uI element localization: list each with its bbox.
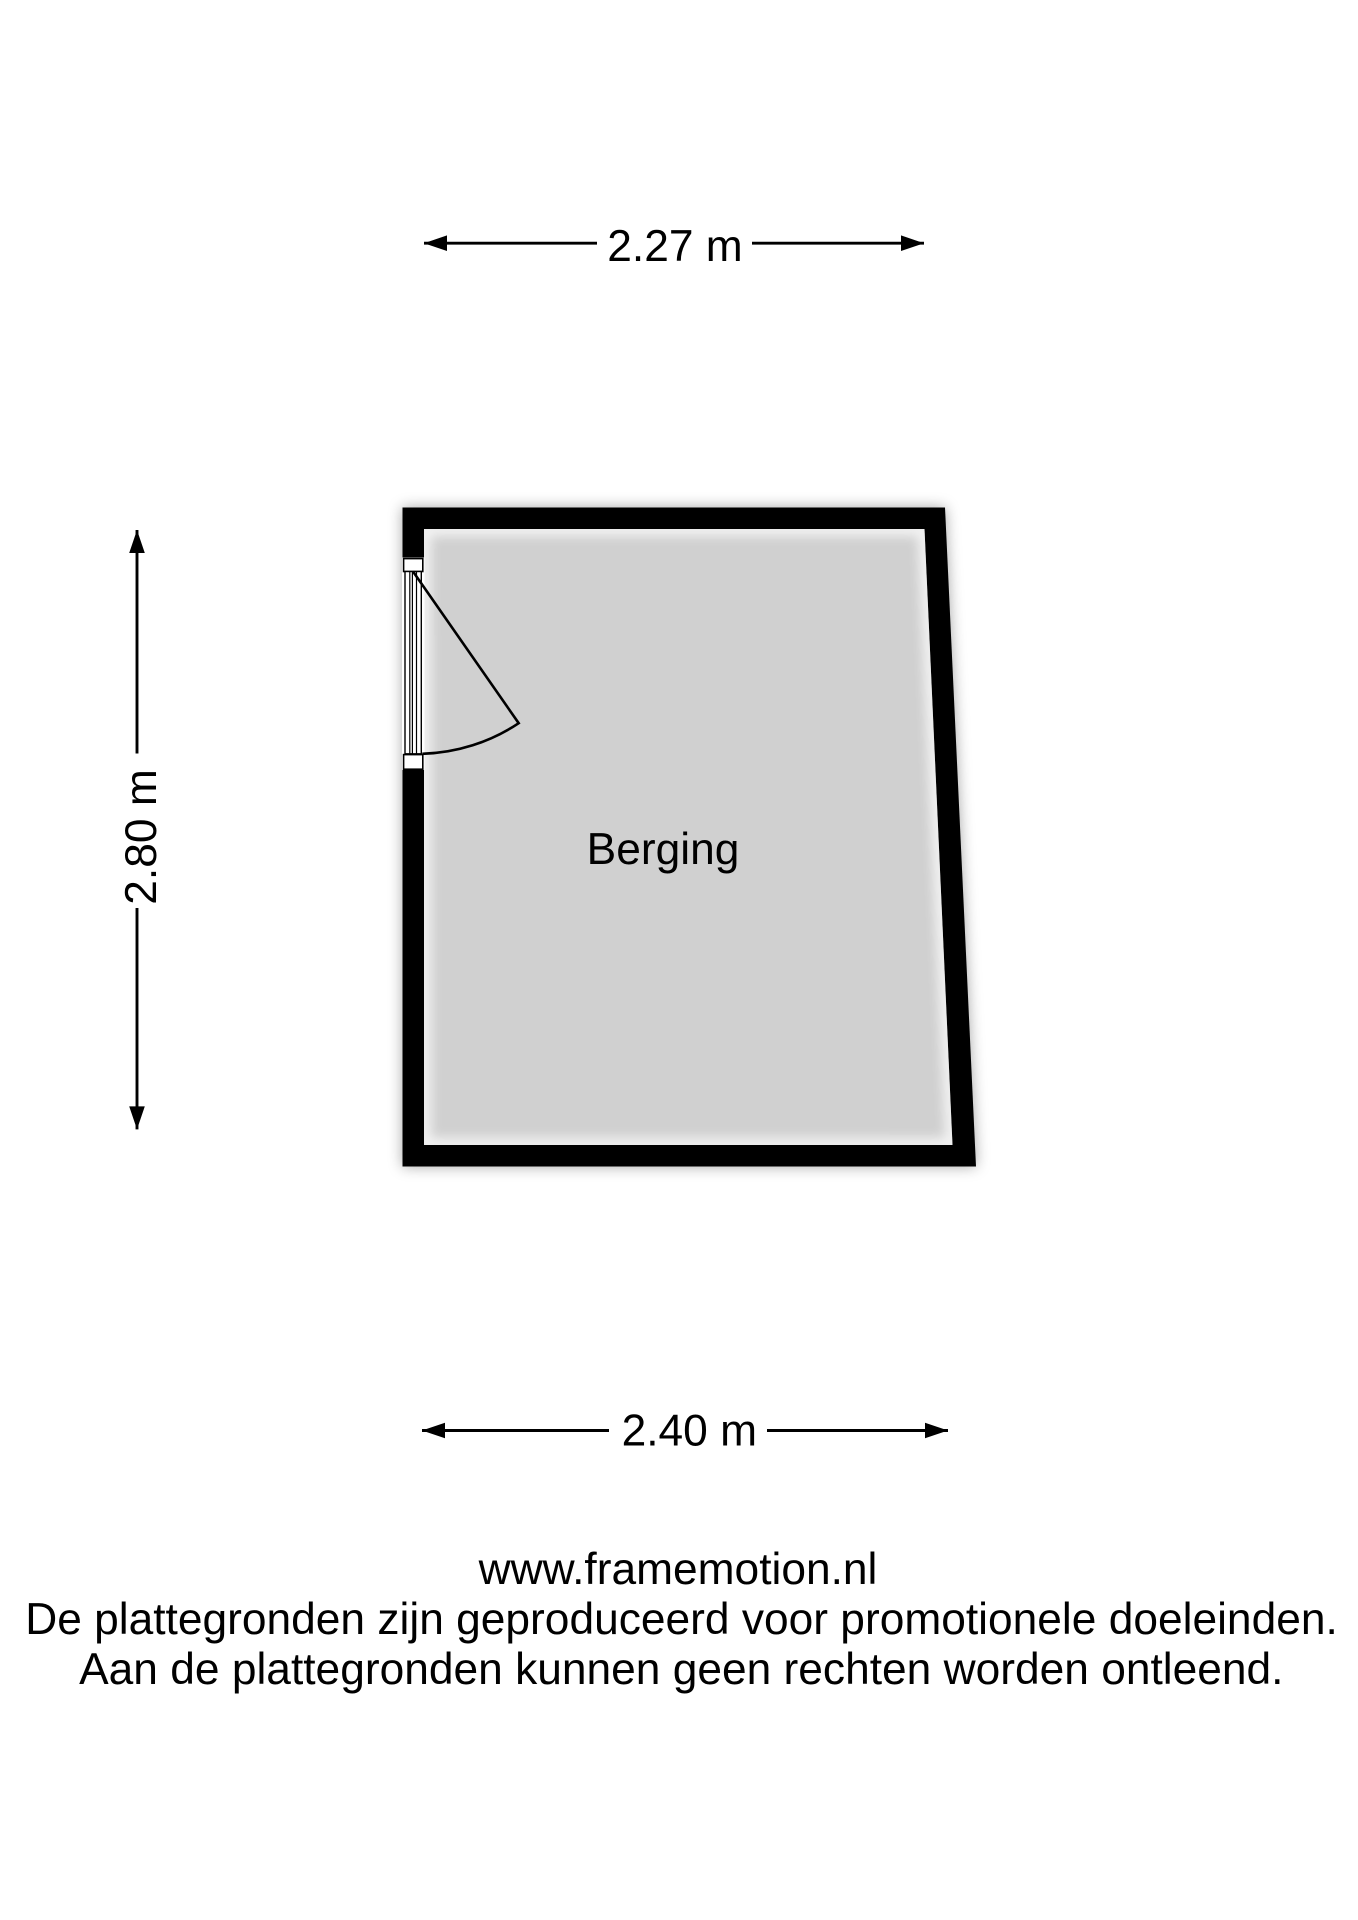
svg-text:Aan de plattegronden kunnen ge: Aan de plattegronden kunnen geen rechten… xyxy=(79,1645,1283,1694)
svg-text:www.framemotion.nl: www.framemotion.nl xyxy=(478,1545,878,1594)
svg-text:2.40 m: 2.40 m xyxy=(622,1407,757,1456)
svg-text:Berging: Berging xyxy=(587,825,740,874)
svg-text:2.80 m: 2.80 m xyxy=(117,769,166,904)
svg-text:De plattegronden zijn geproduc: De plattegronden zijn geproduceerd voor … xyxy=(25,1595,1338,1644)
svg-text:2.27 m: 2.27 m xyxy=(607,222,742,271)
